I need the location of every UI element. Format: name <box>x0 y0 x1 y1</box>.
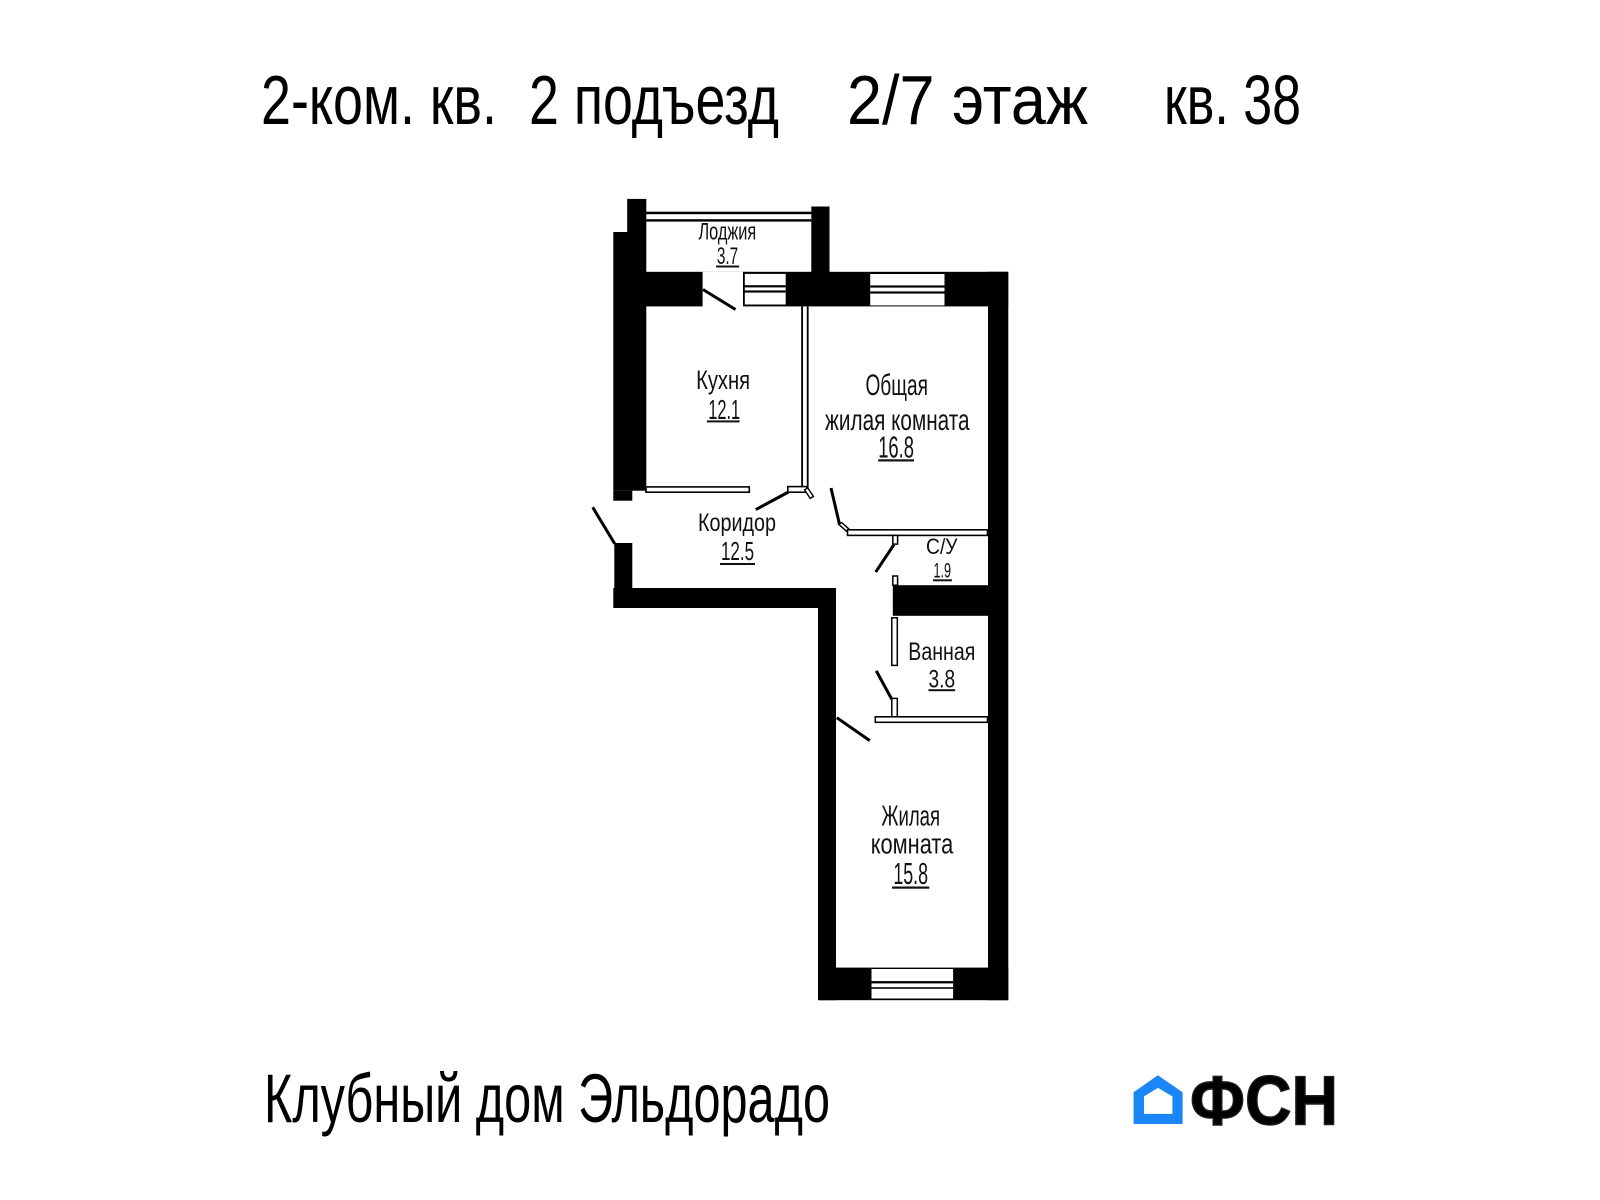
svg-text:2 подъезд: 2 подъезд <box>529 61 779 139</box>
svg-text:12.5: 12.5 <box>721 536 754 566</box>
svg-text:2/7 этаж: 2/7 этаж <box>847 61 1088 139</box>
svg-text:Лоджия: Лоджия <box>698 219 756 246</box>
svg-text:15.8: 15.8 <box>893 856 928 891</box>
svg-text:Ванная: Ванная <box>908 638 975 666</box>
svg-text:2-ком. кв.: 2-ком. кв. <box>261 61 497 139</box>
svg-text:Клубный дом Эльдорадо: Клубный дом Эльдорадо <box>264 1060 830 1137</box>
svg-text:Коридор: Коридор <box>698 509 776 537</box>
svg-text:16.8: 16.8 <box>878 430 914 465</box>
svg-text:кв. 38: кв. 38 <box>1164 61 1301 139</box>
svg-text:ФСН: ФСН <box>1190 1062 1338 1140</box>
svg-text:1.9: 1.9 <box>933 559 951 582</box>
svg-text:Кухня: Кухня <box>696 365 750 395</box>
svg-text:Общая: Общая <box>865 369 928 402</box>
svg-text:12.1: 12.1 <box>708 394 740 425</box>
svg-text:С/У: С/У <box>926 534 958 559</box>
